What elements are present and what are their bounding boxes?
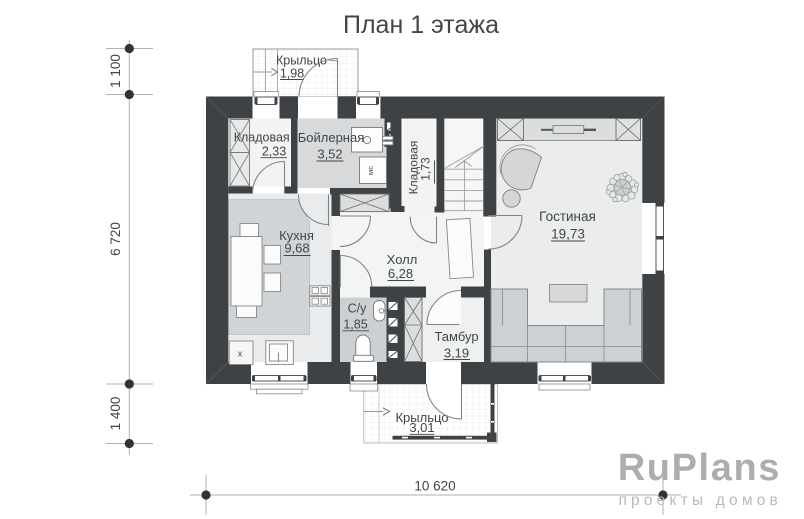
svg-text:Кладовая: Кладовая bbox=[234, 131, 290, 145]
svg-text:Крыльцо: Крыльцо bbox=[276, 54, 327, 68]
svg-text:19,73: 19,73 bbox=[551, 227, 585, 242]
svg-text:1,85: 1,85 bbox=[343, 317, 367, 331]
svg-text:10 620: 10 620 bbox=[414, 479, 455, 494]
svg-text:x: x bbox=[238, 349, 243, 359]
svg-text:проекты домов: проекты домов bbox=[618, 492, 782, 509]
svg-text:1,73: 1,73 bbox=[419, 157, 433, 181]
svg-text:3,52: 3,52 bbox=[317, 147, 342, 162]
svg-text:6,28: 6,28 bbox=[388, 266, 413, 281]
svg-text:мс: мс bbox=[366, 166, 375, 175]
svg-text:Тамбур: Тамбур bbox=[434, 329, 478, 344]
svg-text:9,68: 9,68 bbox=[284, 241, 309, 256]
svg-text:1 100: 1 100 bbox=[108, 54, 123, 88]
svg-text:1 400: 1 400 bbox=[108, 397, 123, 431]
svg-text:3,01: 3,01 bbox=[409, 420, 434, 435]
svg-text:План 1 этажа: План 1 этажа bbox=[343, 11, 499, 39]
svg-text:С/у: С/у bbox=[348, 302, 368, 316]
svg-text:Холл: Холл bbox=[387, 252, 418, 267]
svg-text:RuPlans: RuPlans bbox=[618, 447, 781, 489]
svg-text:2,33: 2,33 bbox=[262, 145, 286, 159]
svg-text:1,98: 1,98 bbox=[280, 67, 304, 81]
svg-text:6 720: 6 720 bbox=[108, 222, 123, 256]
svg-text:Бойлерная: Бойлерная bbox=[298, 130, 365, 145]
svg-text:Гостиная: Гостиная bbox=[539, 209, 596, 224]
svg-text:3,19: 3,19 bbox=[444, 345, 469, 360]
